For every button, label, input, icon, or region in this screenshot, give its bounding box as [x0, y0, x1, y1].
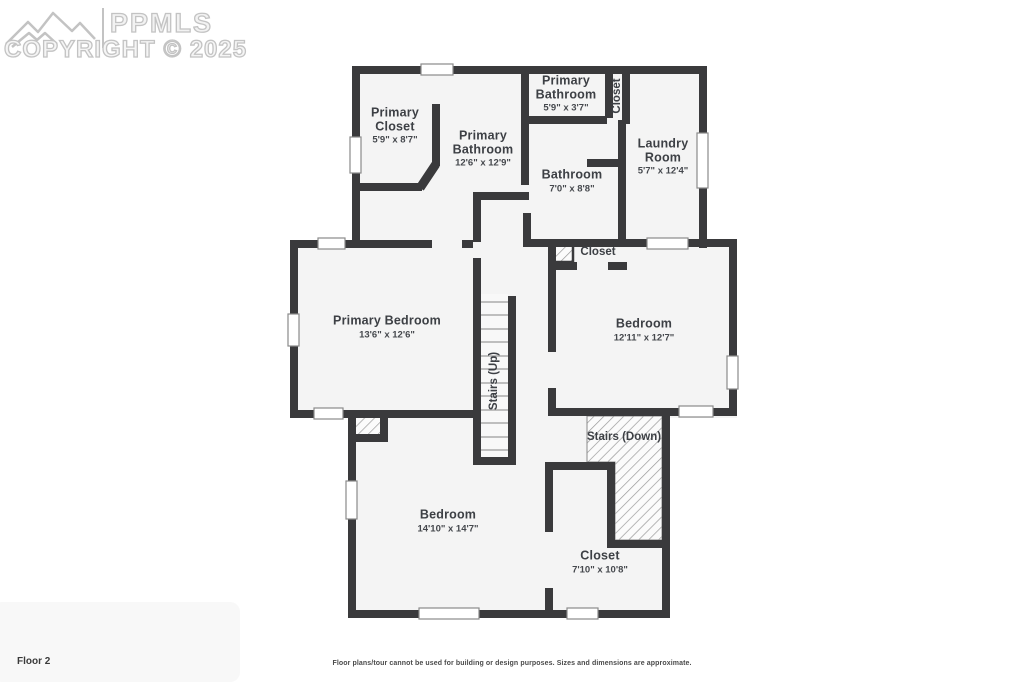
copyright-text: COPYRIGHT © 2025 — [4, 36, 247, 64]
ppmls-watermark: PPMLS COPYRIGHT © 2025 — [0, 0, 260, 70]
chimney-hatch — [353, 416, 384, 436]
floor-plan-drawing — [0, 0, 1024, 682]
closet-hatch-mid — [554, 245, 573, 262]
floor-plan-page: PPMLS COPYRIGHT © 2025 Primary Closet 5'… — [0, 0, 1024, 682]
disclaimer-text: Floor plans/tour cannot be used for buil… — [0, 660, 1024, 667]
stairs-up-treads — [481, 294, 508, 460]
ppmls-logo-text: PPMLS — [110, 8, 213, 39]
